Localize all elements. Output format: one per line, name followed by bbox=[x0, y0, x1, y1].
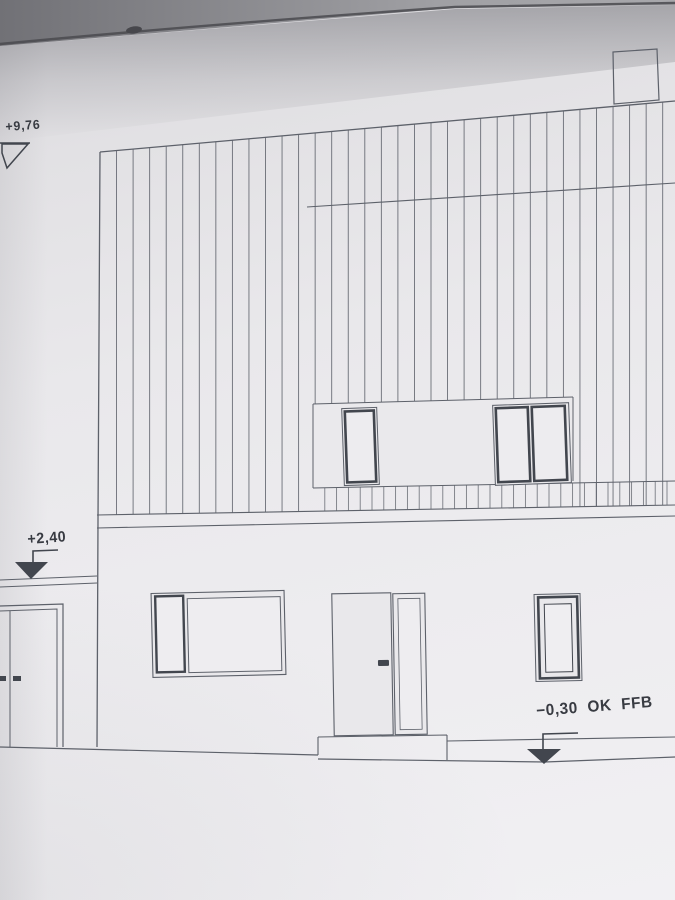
double-door-inner-frame bbox=[0, 609, 57, 747]
elevation-drawing bbox=[0, 0, 675, 900]
ground-window-left-sash bbox=[155, 596, 185, 673]
level-marker-icon bbox=[15, 550, 58, 579]
ground-line-left bbox=[0, 747, 318, 755]
facade-left-edge bbox=[97, 152, 100, 747]
ground-line-right bbox=[318, 757, 675, 762]
upper-window-right-sash-right bbox=[532, 406, 568, 481]
double-door-outer-frame bbox=[0, 604, 63, 747]
side-annex bbox=[0, 576, 97, 747]
upper-trim-line bbox=[307, 183, 675, 207]
floor-level-marker-flag bbox=[543, 733, 578, 749]
double-door-handle-left bbox=[0, 676, 6, 681]
photographed-elevation-drawing: +9,76 +2,40 −0,30 OK FFB bbox=[0, 0, 675, 900]
entry-step bbox=[318, 735, 447, 760]
canopy-level-label: +2,40 bbox=[27, 528, 67, 548]
upper-window-right bbox=[493, 403, 572, 486]
upper-window-left bbox=[342, 407, 380, 485]
upper-window-band bbox=[313, 397, 675, 511]
upper-window-right-sash-left bbox=[496, 407, 531, 482]
floor-band bbox=[97, 505, 675, 528]
floor-band-bottom-line bbox=[97, 516, 675, 528]
upper-window-left-sash bbox=[345, 410, 376, 482]
double-door-handle-right bbox=[13, 676, 21, 681]
level-marker-icon bbox=[527, 733, 578, 764]
base-lines bbox=[0, 735, 675, 762]
wall-base-line-right bbox=[447, 737, 675, 741]
door-sidelight-pane bbox=[398, 598, 422, 729]
canopy-lines bbox=[0, 576, 97, 587]
ground-window-left-fixed-pane bbox=[187, 597, 282, 673]
entrance bbox=[332, 592, 427, 736]
ground-window-left bbox=[151, 590, 286, 677]
roof-level-marker-shape bbox=[0, 143, 30, 168]
ground-window-right-pane bbox=[544, 604, 573, 673]
canopy-level-marker-flag bbox=[33, 550, 58, 562]
level-marker-icon bbox=[0, 143, 30, 168]
photo-backdrop bbox=[0, 0, 675, 142]
door-handle bbox=[378, 660, 389, 666]
canopy-level-marker-triangle bbox=[15, 562, 48, 579]
roof-level-label: +9,76 bbox=[5, 117, 41, 134]
ground-window-right bbox=[534, 593, 582, 681]
floor-band-top-line bbox=[97, 505, 675, 515]
